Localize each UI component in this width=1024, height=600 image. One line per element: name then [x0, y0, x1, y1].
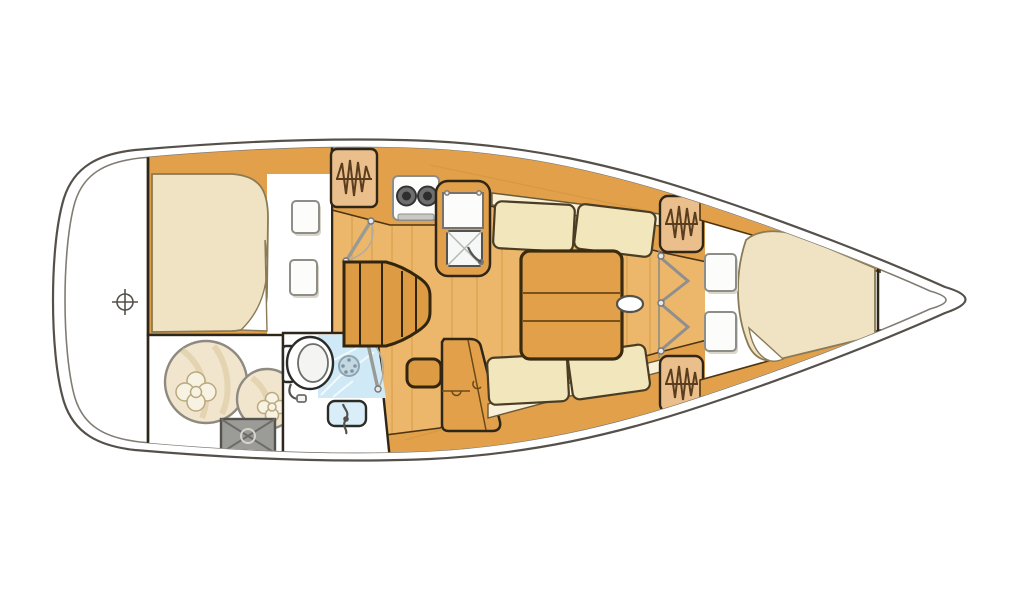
- head-compartment: [283, 332, 391, 470]
- nav-seat: [407, 359, 441, 387]
- aft-cabin-walkway: [267, 174, 331, 334]
- settee-cushion: [487, 354, 569, 405]
- galley-sink-icon: [447, 231, 484, 266]
- floor-plan-canvas: [0, 0, 1024, 600]
- galley-unit: [436, 181, 490, 276]
- companionway-steps: [344, 262, 430, 346]
- pillow-icon: [705, 312, 738, 354]
- boat-floor-plan: [0, 0, 1024, 600]
- hanging-locker: [660, 196, 703, 252]
- aft-cabin: [148, 138, 332, 335]
- salon-table: [521, 251, 622, 359]
- two-burner-stove-icon: [393, 176, 439, 220]
- pillow-icon: [292, 201, 321, 236]
- pillow-icon: [290, 260, 319, 298]
- forward-cabin: [700, 128, 880, 475]
- settee-cushion: [493, 201, 575, 252]
- hanging-locker: [331, 149, 377, 207]
- aft-berth-mattress: [152, 174, 268, 332]
- shower-drain-icon: [339, 356, 359, 376]
- icebox-icon: [443, 191, 483, 228]
- sail-bag-icon: [165, 341, 247, 423]
- mast-post-icon: [617, 296, 643, 312]
- deck-hatch-icon: [221, 419, 275, 453]
- pillow-icon: [705, 254, 738, 294]
